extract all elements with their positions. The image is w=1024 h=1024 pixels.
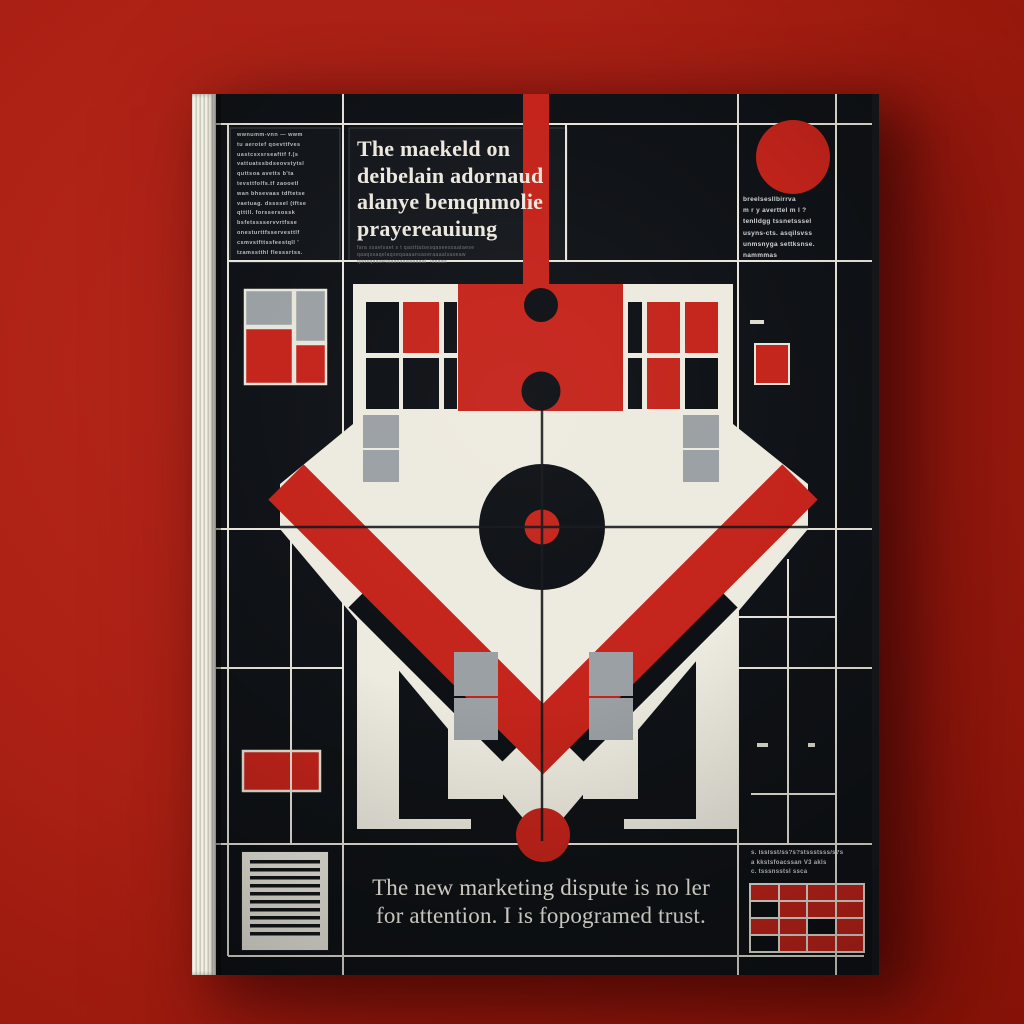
grid-cell <box>751 885 778 900</box>
right-paragraph-line: breelsesllbirrva <box>743 194 837 205</box>
left-paragraph-line: tu aerotef qoevttfves <box>237 141 337 151</box>
left-paragraph-line: vaetuag. dssssel (tftse <box>237 200 337 210</box>
grid-cell <box>837 919 864 934</box>
grid-cell <box>808 919 835 934</box>
right-paragraph-line: nammmas <box>743 250 837 261</box>
headline-line: deibelain adornaud <box>357 163 569 190</box>
headline-line: alanye bemqnmolie <box>357 189 569 216</box>
left-paragraph-line: vattuatssbdseovstytsl <box>237 160 337 170</box>
left-paragraph-line: quttsoa avetts b'ta <box>237 170 337 180</box>
headline-subtext: fara ssaelsaet s t qastttatsesqaseessaat… <box>357 245 543 267</box>
central-composition <box>280 284 808 862</box>
left-paragraph-line: tzamsstthl flesssrtss. <box>237 249 337 259</box>
grid-cell <box>837 936 864 951</box>
right-paragraph-line: m r y averttel m l ? <box>743 205 837 216</box>
cover-left-shadow <box>216 94 221 975</box>
grid-cell <box>780 902 807 917</box>
grid-cell <box>808 885 835 900</box>
cover-right-edge <box>872 94 879 975</box>
black-dot-icon <box>522 372 561 411</box>
headline-subtext-line: qaaqssaqelaqseqaaaansaseraaaalsaseaw <box>357 252 543 259</box>
grid-cell <box>751 919 778 934</box>
tagline-line: The new marketing dispute is no ler <box>343 874 739 902</box>
note-line: s. lsslsst/ss?s?stssstsss/s?s <box>751 849 863 859</box>
tagline-line: for attention. I is fopogramed trust. <box>343 902 739 930</box>
small-red-square <box>755 344 789 384</box>
black-dot-icon <box>524 288 558 322</box>
cover-headline: The maekeld ondeibelain adornaudalanye b… <box>357 136 569 242</box>
cover-tagline: The new marketing dispute is no lerfor a… <box>343 874 739 930</box>
grid-cell <box>751 902 778 917</box>
left-paragraph-line: bsfetsssservvrtfsse <box>237 219 337 229</box>
left-paragraph-line: wan bhsevaas tdftetse <box>237 190 337 200</box>
bottom-right-notes: s. lsslsst/ss?s?stssstsss/s?sa kkstsfoac… <box>751 849 863 878</box>
left-paragraph-line: qtttll. forssersossk <box>237 209 337 219</box>
grid-cell <box>808 902 835 917</box>
mini-grid <box>749 883 865 953</box>
right-paragraph: breelsesllbirrvam r y averttel m l ?tenl… <box>743 194 837 261</box>
book: wwnumm-vnn — wwmtu aerotef qoevttfvesuas… <box>192 94 879 975</box>
note-line: a kkstsfoacssan V3 akls <box>751 859 863 869</box>
left-paragraph-line: uastcsxsrseafttf f.(s <box>237 151 337 161</box>
left-paragraph-line: tevsttfolfs.tf zaooetl <box>237 180 337 190</box>
page-edges <box>192 94 216 975</box>
top-right-red-circle-icon <box>756 120 830 194</box>
headline-subtext-line: qaosqaaaetaaaosaaaaaaal. losaas <box>357 259 543 266</box>
square-cluster <box>245 290 326 384</box>
left-paragraph-line: onesturttfsservesttlf <box>237 229 337 239</box>
left-paragraph-line: csmvstfttssfeestqll ' <box>237 239 337 249</box>
grid-cell <box>751 936 778 951</box>
left-red-block <box>243 751 320 791</box>
left-paragraph: wwnumm-vnn — wwmtu aerotef qoevttfvesuas… <box>237 131 337 258</box>
grid-cell <box>837 885 864 900</box>
photo-background: wwnumm-vnn — wwmtu aerotef qoevttfvesuas… <box>0 0 1024 1024</box>
headline-line: The maekeld on <box>357 136 569 163</box>
right-paragraph-line: tenlldgg tssnetsssel <box>743 216 837 227</box>
front-cover: wwnumm-vnn — wwmtu aerotef qoevttfvesuas… <box>216 94 879 975</box>
left-paragraph-line: wwnumm-vnn — wwm <box>237 131 337 141</box>
right-paragraph-line: usyns-cts. asqilsvss <box>743 228 837 239</box>
grid-cell <box>808 936 835 951</box>
grid-cell <box>837 902 864 917</box>
right-paragraph-line: unmsnyga settksnse. <box>743 239 837 250</box>
grid-cell <box>780 885 807 900</box>
grid-cell <box>780 919 807 934</box>
headline-line: prayereauiung <box>357 216 569 243</box>
headline-subtext-line: fara ssaelsaet s t qastttatsesqaseessaat… <box>357 245 543 252</box>
barcode-stripes <box>250 860 320 938</box>
grid-cell <box>780 936 807 951</box>
note-line: c. tsssnsstsl ssca <box>751 868 863 878</box>
barcode-icon <box>241 851 329 951</box>
